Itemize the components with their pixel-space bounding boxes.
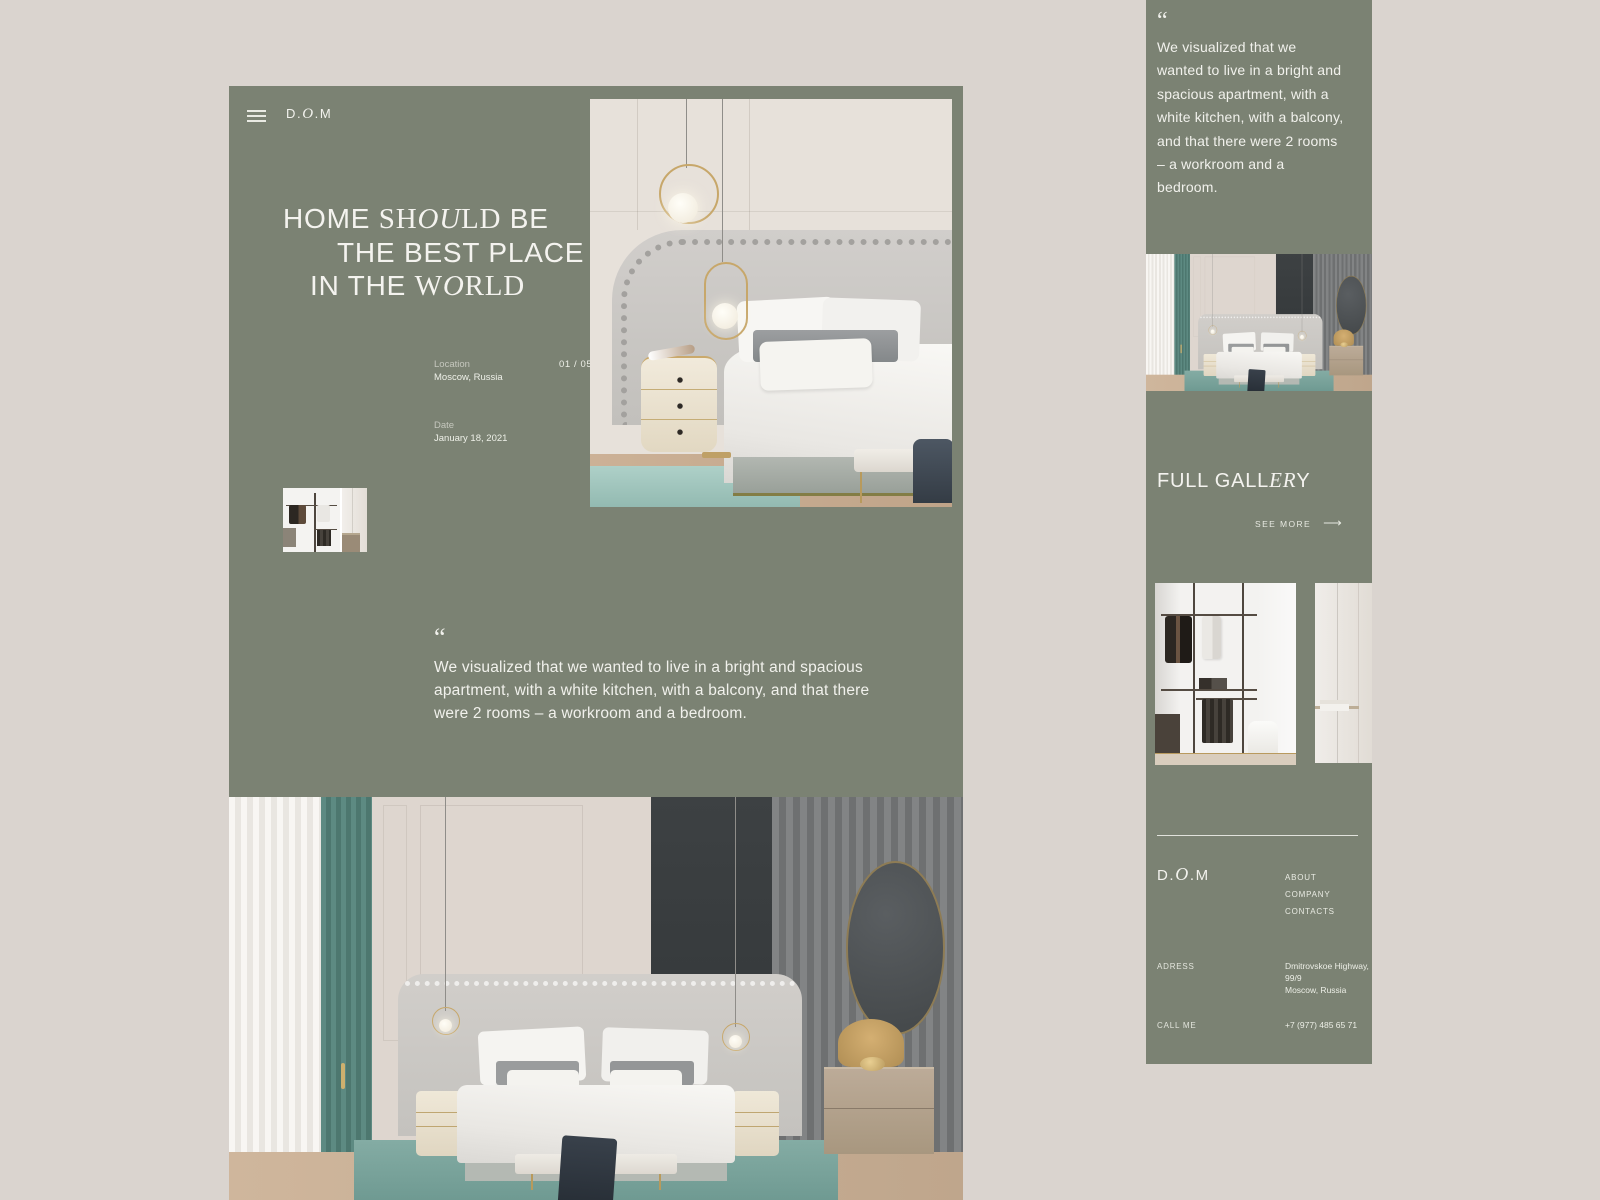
full-gallery-title: FULL GALLERY bbox=[1157, 468, 1310, 493]
phone-number[interactable]: +7 (977) 485 65 71 bbox=[1285, 1020, 1357, 1030]
footer-link-contacts[interactable]: CONTACTS bbox=[1285, 903, 1335, 920]
gallery-image-doorway[interactable] bbox=[1315, 583, 1372, 763]
footer-link-about[interactable]: ABOUT bbox=[1285, 869, 1335, 886]
dark-throw-blanket bbox=[558, 1136, 618, 1200]
quote-text: We visualized that we wanted to live in … bbox=[1157, 36, 1345, 200]
logo-accent: O bbox=[1175, 864, 1190, 884]
logo-part: .M bbox=[315, 106, 333, 121]
bedroom-photo-thumbnail[interactable] bbox=[1146, 254, 1372, 391]
call-me-label: CALL ME bbox=[1157, 1021, 1197, 1030]
address-label: ADRESS bbox=[1157, 962, 1195, 971]
nightstand bbox=[641, 356, 717, 452]
address-line: Moscow, Russia bbox=[1285, 984, 1369, 996]
see-more-label: SEE MORE bbox=[1255, 519, 1311, 529]
gallery-preview-thumbnail[interactable] bbox=[283, 488, 367, 552]
address-value: Dmitrovskoe Highway, 99/9 Moscow, Russia bbox=[1285, 960, 1369, 996]
logo-part: D. bbox=[286, 106, 302, 121]
sheer-curtain bbox=[229, 797, 324, 1200]
footer-logo[interactable]: D.O.M bbox=[1157, 864, 1210, 885]
mobile-page: “ We visualized that we wanted to live i… bbox=[1146, 0, 1372, 1064]
headline-line-1: HOME SHOULD BE bbox=[283, 202, 584, 236]
logo-accent: O bbox=[302, 106, 314, 122]
desktop-page: D.O.M HOME SHOULD BE THE BEST PLACE IN T… bbox=[229, 86, 963, 1200]
nightstand bbox=[732, 1091, 780, 1155]
footer-divider bbox=[1157, 835, 1358, 836]
logo-part: D. bbox=[1157, 867, 1175, 884]
hero-photo-bedroom bbox=[590, 99, 952, 507]
slide-counter: 01 / 05 bbox=[559, 358, 592, 371]
full-width-photo-bedroom bbox=[229, 797, 963, 1200]
logo[interactable]: D.O.M bbox=[286, 106, 332, 123]
footer-link-company[interactable]: COMPANY bbox=[1285, 886, 1335, 903]
page-title: HOME SHOULD BE THE BEST PLACE IN THE WOR… bbox=[283, 202, 584, 303]
footer-nav: ABOUT COMPANY CONTACTS bbox=[1285, 869, 1335, 920]
bench bbox=[515, 1154, 676, 1190]
headline-line-2: THE BEST PLACE bbox=[337, 236, 584, 269]
dresser bbox=[824, 1067, 934, 1154]
logo-part: .M bbox=[1190, 867, 1210, 884]
quote-mark-icon: “ bbox=[1157, 12, 1345, 30]
menu-icon[interactable] bbox=[247, 110, 266, 122]
quote-block: “ We visualized that we wanted to live i… bbox=[1157, 12, 1345, 200]
gallery-image-closet[interactable] bbox=[1155, 583, 1296, 765]
bench bbox=[854, 434, 952, 503]
page-canvas: D.O.M HOME SHOULD BE THE BEST PLACE IN T… bbox=[0, 0, 1600, 1200]
see-more-link[interactable]: SEE MORE ⟶ bbox=[1255, 516, 1342, 531]
quote-text: We visualized that we wanted to live in … bbox=[434, 656, 874, 725]
address-line: Dmitrovskoe Highway, bbox=[1285, 960, 1369, 972]
arrow-right-icon: ⟶ bbox=[1323, 516, 1342, 531]
quote-block: “ We visualized that we wanted to live i… bbox=[434, 628, 874, 725]
address-line: 99/9 bbox=[1285, 972, 1369, 984]
quote-mark-icon: “ bbox=[434, 628, 874, 648]
round-mirror bbox=[846, 861, 945, 1034]
thumbnail-closet-photo bbox=[283, 488, 340, 552]
headline-line-3: IN THE WORLD bbox=[310, 269, 584, 303]
thumbnail-hallway-photo bbox=[342, 488, 367, 552]
